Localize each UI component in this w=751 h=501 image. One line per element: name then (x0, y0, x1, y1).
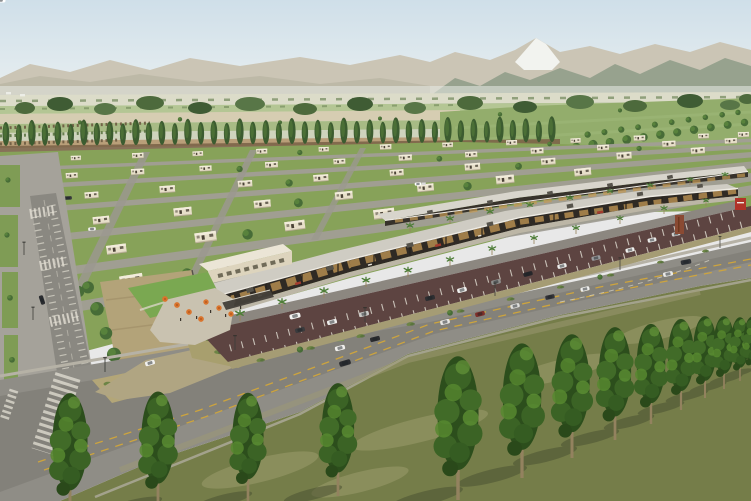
house (442, 142, 453, 147)
verge-tree (9, 357, 15, 363)
palm-tree (661, 206, 667, 214)
house (380, 144, 392, 150)
tree (178, 117, 182, 121)
umbrella (186, 309, 192, 315)
aerial-rendering (0, 0, 751, 501)
strip-tree (447, 310, 453, 316)
house (506, 140, 517, 146)
red-sign-text-bar (737, 202, 744, 203)
house (531, 148, 544, 155)
umbrella (198, 316, 204, 322)
verge (0, 215, 18, 267)
house (238, 180, 253, 188)
palm-tree (617, 216, 623, 224)
red-sign (735, 198, 746, 210)
house (738, 132, 749, 138)
car (88, 227, 96, 231)
house (574, 167, 591, 177)
farm-structure (6, 92, 11, 94)
umbrella (174, 302, 180, 308)
house (84, 191, 98, 199)
house (333, 159, 345, 165)
house (159, 185, 175, 193)
monument-sign-stripe (678, 217, 680, 232)
umbrella (203, 299, 208, 304)
median-tree (100, 327, 112, 339)
verge-tree (4, 232, 9, 237)
house (725, 138, 737, 144)
verge (0, 165, 20, 207)
house (634, 135, 646, 141)
strip-tree (297, 346, 303, 352)
house (496, 174, 515, 184)
house (399, 154, 413, 161)
umbrella (162, 296, 168, 302)
house (541, 158, 556, 166)
house (465, 163, 481, 171)
median-tree (90, 302, 104, 316)
house (173, 207, 192, 217)
verge-tree (5, 177, 10, 182)
house (319, 147, 329, 152)
palm-tree (488, 246, 495, 255)
house (597, 145, 609, 151)
house (465, 151, 477, 157)
house (698, 133, 709, 138)
house (616, 152, 631, 160)
house (335, 191, 353, 201)
house (66, 173, 78, 179)
palm-tree (446, 257, 453, 266)
house (390, 169, 404, 177)
palm-tree (531, 235, 538, 244)
house (132, 153, 144, 159)
farm-structure (20, 94, 25, 96)
house (192, 151, 203, 156)
tree (618, 108, 622, 112)
umbrella (228, 311, 233, 316)
tree (378, 117, 382, 121)
house (313, 174, 328, 182)
house (662, 141, 676, 148)
verge-tree (7, 295, 13, 301)
house (199, 165, 211, 171)
house (691, 147, 705, 155)
palm-tree (573, 225, 580, 234)
parked-car (0, 0, 6, 3)
house (265, 162, 278, 169)
strip-tree (597, 274, 602, 279)
median-tree (82, 281, 94, 293)
umbrella (216, 305, 221, 310)
house (254, 199, 271, 209)
house (256, 149, 267, 155)
scene (0, 0, 751, 501)
house (131, 168, 145, 175)
house (71, 156, 81, 161)
house (570, 138, 580, 143)
tree (498, 112, 502, 116)
house (93, 216, 110, 225)
